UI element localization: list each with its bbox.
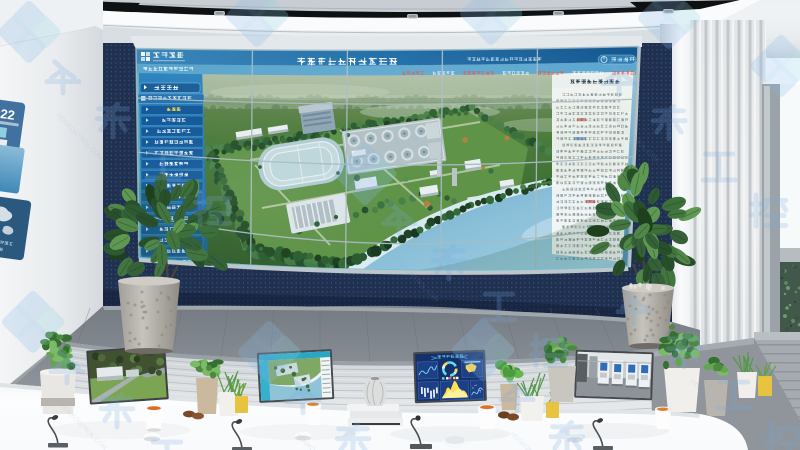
svg-text:2022: 2022	[0, 104, 16, 123]
